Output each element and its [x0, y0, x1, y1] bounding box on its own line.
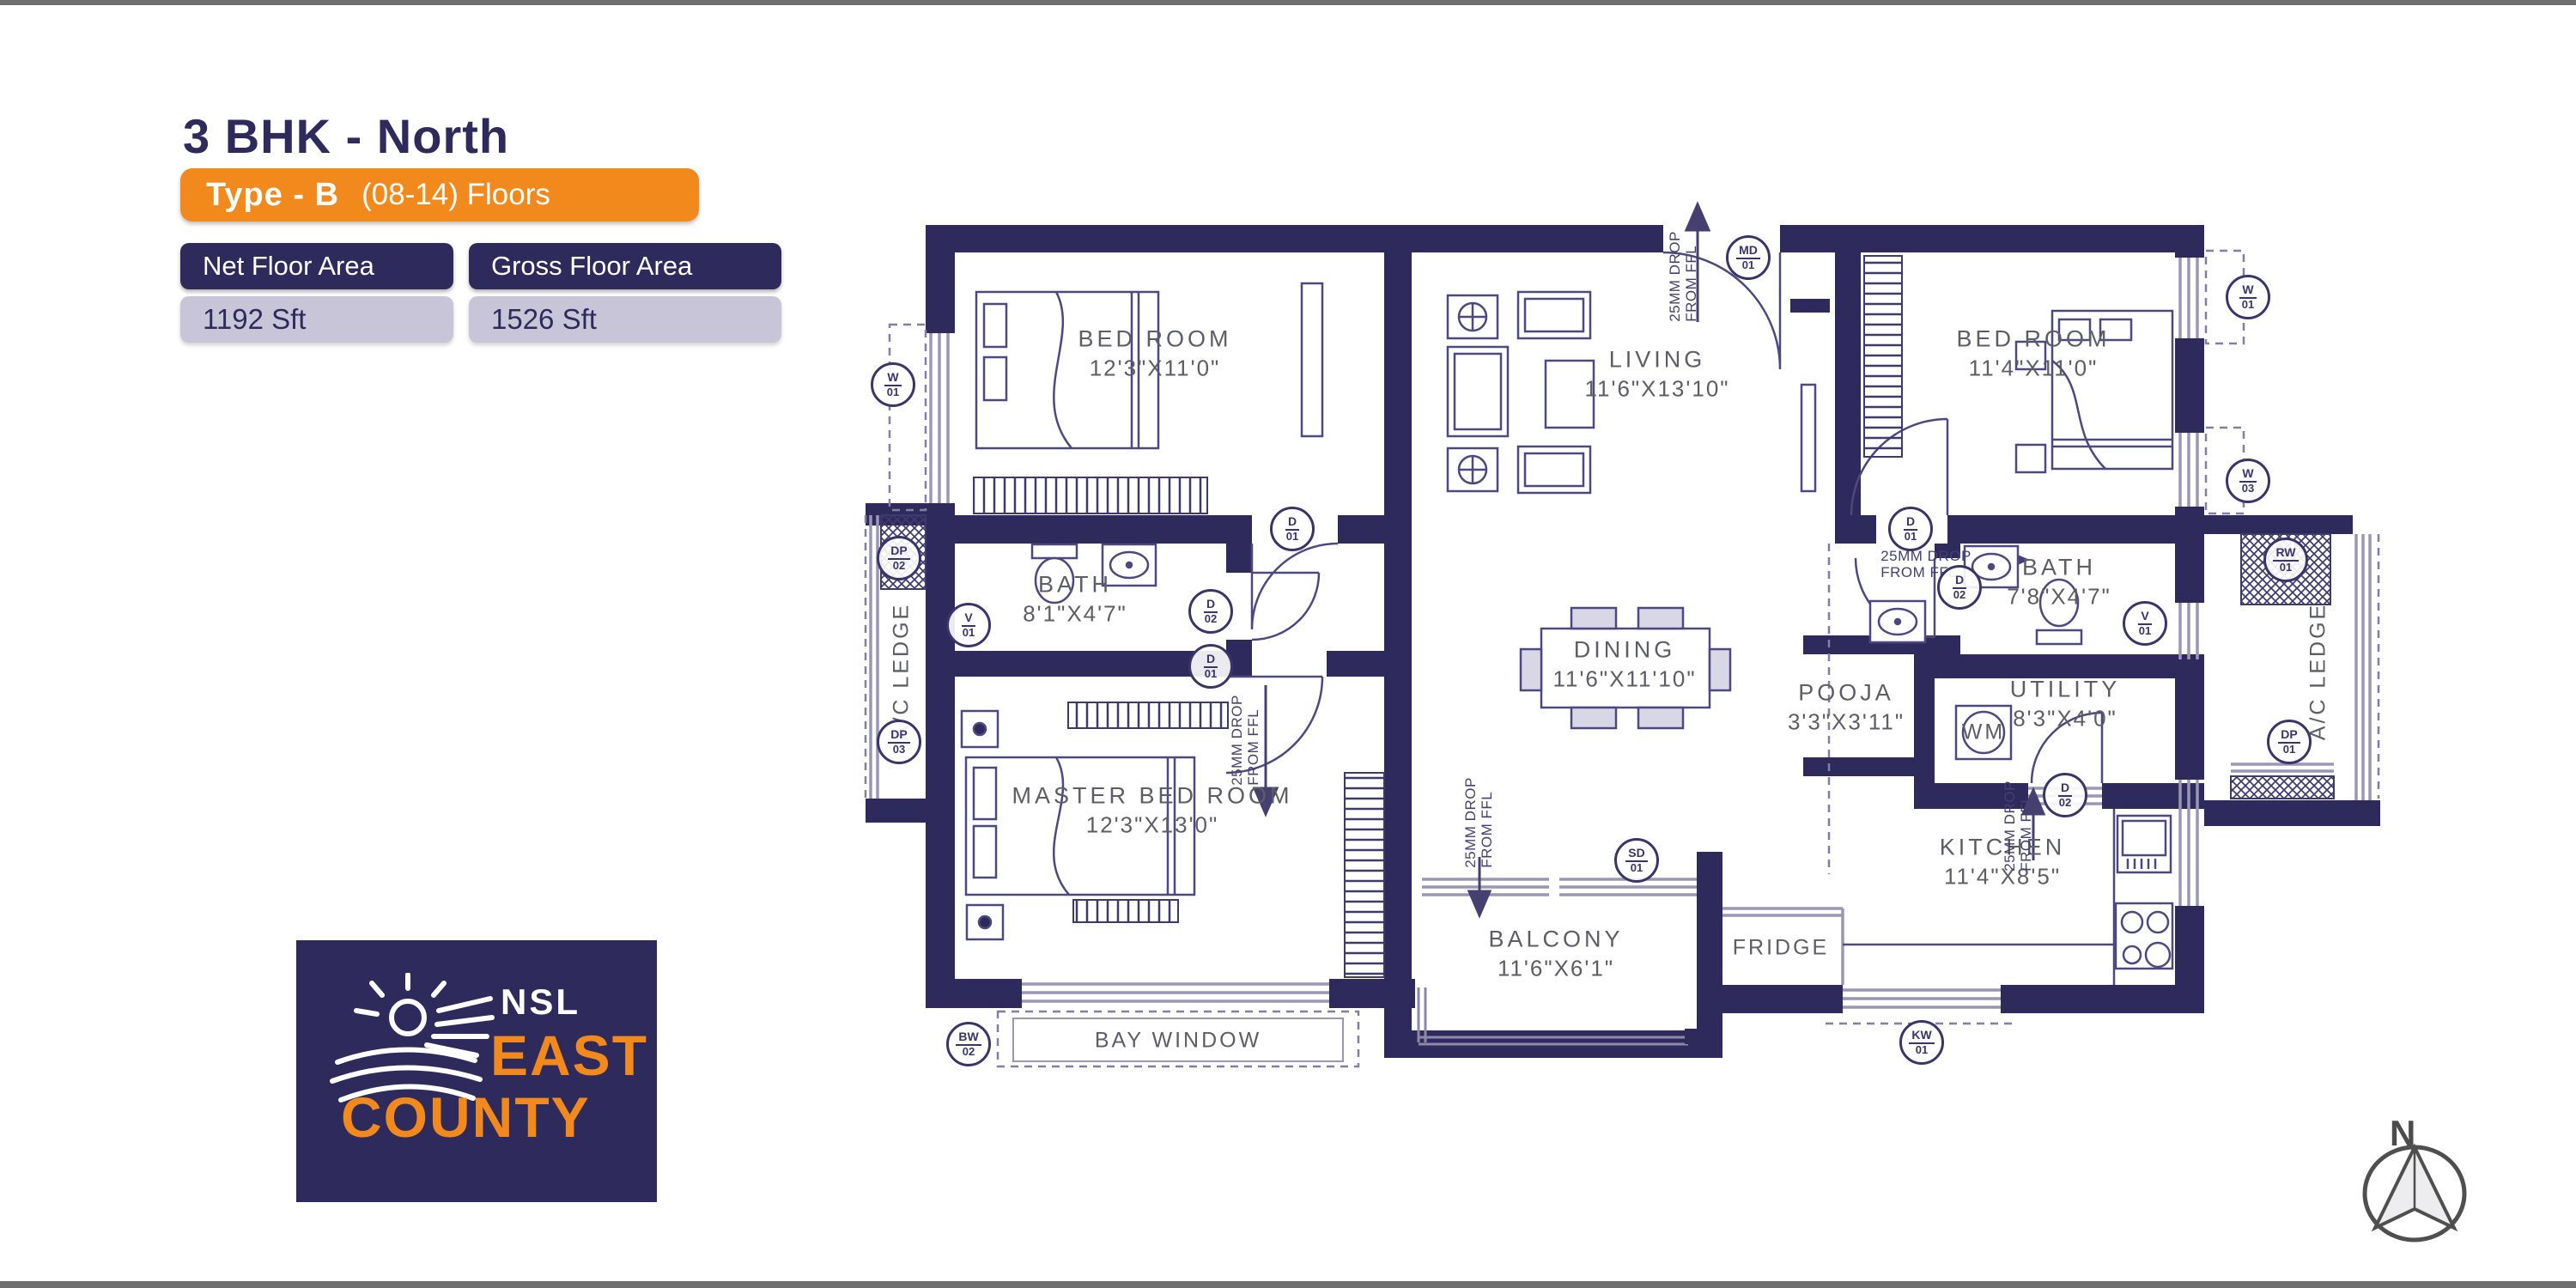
symbol-door-d01-bed2: D01: [1888, 507, 1933, 551]
symbol-window-w01-right: W01: [2226, 275, 2270, 319]
annotation-balcony-drop: 25MM DROPFROM FFL: [1462, 777, 1495, 868]
plan-label-ac-ledge-right: A/C LEDGE: [2306, 603, 2331, 740]
symbol-drain-dp02-left: DP02: [877, 536, 921, 580]
symbol-bay-window-bw02: BW02: [946, 1022, 991, 1066]
plan-label-fridge: FRIDGE: [1733, 936, 1829, 961]
symbol-kitchen-window-kw01: KW01: [1899, 1020, 1944, 1065]
room-label-dining: DINING11'6"X11'10": [1552, 637, 1696, 693]
symbol-slider-sd01: SD01: [1614, 838, 1659, 883]
symbol-door-d02-bath2: D02: [1937, 565, 1982, 610]
symbol-drain-dp01-right: DP01: [2267, 720, 2312, 764]
room-label-utility: UTILITY8'3"X4'0": [2010, 677, 2121, 732]
room-label-balcony: BALCONY11'6"X6'1": [1488, 927, 1623, 982]
room-label-bath-2: BATH7'8"X4'7": [2007, 555, 2111, 611]
room-label-bedroom-1: BED ROOM12'3"X11'0": [1078, 326, 1231, 382]
plan-label-wm: WM: [1962, 720, 2005, 745]
symbol-drain-dp03-left: DP03: [877, 720, 921, 764]
room-label-pooja: POOJA3'3"X3'11": [1788, 680, 1905, 736]
symbol-door-d01-master: D01: [1188, 644, 1233, 689]
symbol-door-d02-bath1: D02: [1188, 589, 1233, 634]
plan-label-bay-window: BAY WINDOW: [1095, 1029, 1261, 1054]
page: 3 BHK - North Type - B (08-14) Floors Ne…: [0, 0, 2576, 1288]
symbol-rain-rw01: RW01: [2263, 538, 2308, 582]
symbol-main-door-md01: MD01: [1726, 235, 1771, 280]
symbol-vent-v01-right: V01: [2123, 601, 2167, 646]
annotation-master-drop: 25MM DROPFROM FFL: [1229, 695, 1261, 786]
symbol-door-d02-utility: D02: [2043, 773, 2087, 817]
annotation-utility-drop: 25MM DROPFROM FFL: [2002, 781, 2034, 872]
room-label-bath-1: BATH8'1"X4'7": [1023, 572, 1127, 628]
symbol-window-w01-left: W01: [871, 362, 915, 407]
annotation-entry-drop: 25MM DROPFROM FFL: [1667, 231, 1699, 322]
plan-overlay: BED ROOM12'3"X11'0"LIVING11'6"X13'10"BED…: [0, 0, 2576, 1288]
room-label-bedroom-2: BED ROOM11'4"X11'0": [1956, 326, 2110, 382]
room-label-master-bedroom: MASTER BED ROOM12'3"X13'0": [1012, 783, 1292, 839]
symbol-window-w03-right: W03: [2226, 459, 2270, 503]
symbol-door-d01-bed1: D01: [1270, 507, 1315, 551]
room-label-living: LIVING11'6"X13'10": [1584, 347, 1729, 403]
symbol-vent-v01-left: V01: [946, 603, 991, 647]
